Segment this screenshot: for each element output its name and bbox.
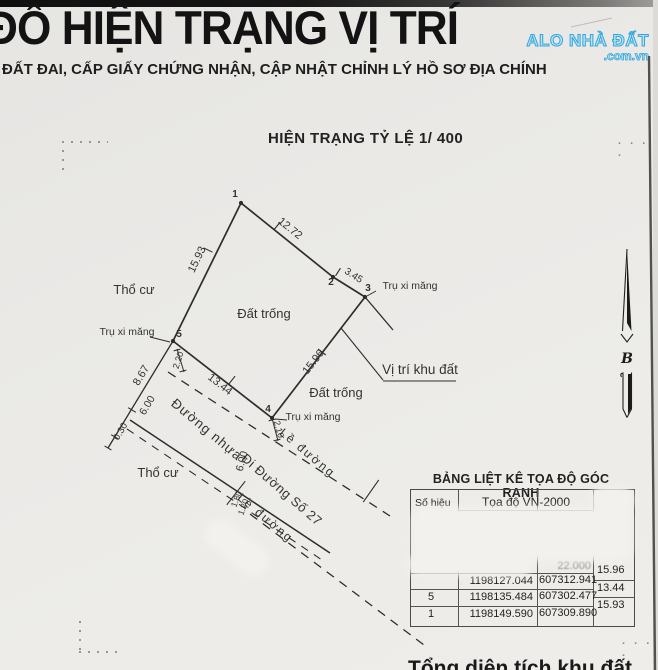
diagram-label: 6.00: [137, 393, 158, 417]
diagram-line: [173, 203, 241, 341]
dimension-tick: [336, 268, 341, 276]
diagram-line: [571, 18, 612, 27]
blur-patch: [417, 512, 627, 556]
table-hline: [593, 597, 634, 598]
diagram-label: 2.20: [171, 350, 186, 370]
diagram-label: 2: [328, 277, 334, 288]
diagram-label: 8.67: [131, 363, 152, 388]
edge-length: 15.96: [597, 564, 625, 576]
diagram-label: 5: [176, 329, 182, 340]
diagram-label: Trụ xi măng: [285, 411, 340, 423]
north-arrow-icon: [621, 249, 633, 418]
diagram-line: [341, 328, 383, 380]
coord-y: 607302.477: [539, 590, 591, 602]
dimension-tick: [274, 439, 281, 441]
blur-patch: [595, 492, 629, 508]
diagram-label: 3: [365, 283, 371, 294]
diagram-line: [365, 297, 393, 330]
north-label: B: [620, 351, 633, 367]
diagram-line: [241, 203, 333, 277]
diagram-label: 3.45: [342, 266, 365, 286]
coord-x: 1198127.044: [463, 575, 533, 587]
diagram-label: 12.72: [275, 215, 304, 242]
dimension-tick: [363, 480, 378, 502]
diagram-label: Thổ cư: [137, 465, 179, 480]
diagram-label: 15.96: [300, 348, 326, 377]
dimension-tick: [105, 446, 112, 450]
blur-patch: [412, 558, 528, 571]
col-header-id: Số hiệu: [415, 497, 451, 509]
diagram-label: 13.44: [205, 371, 234, 397]
boundary-vertex: [239, 201, 243, 205]
table-hline: [458, 510, 594, 511]
diagram-label: Đất trống: [237, 306, 290, 321]
diagram-label: Vị trí khu đất: [382, 362, 458, 377]
diagram-label: Thổ cư: [113, 282, 155, 297]
corner-id: 5: [411, 591, 451, 603]
diagram-label: 1: [232, 189, 238, 200]
col-header-coord: Tọa độ VN-2000: [458, 495, 594, 509]
diagram-label: 4: [265, 404, 271, 415]
coord-y: 607312.941: [539, 574, 591, 586]
corner-id: 1: [411, 608, 451, 620]
edge-length: 15.93: [597, 599, 625, 611]
diagram-label: Trụ xi măng: [382, 280, 437, 292]
diagram-label: 0.30: [111, 421, 130, 443]
diagram-label: Trụ xi măng: [99, 326, 154, 338]
coord-y: 607309.890: [539, 607, 591, 619]
coord-x: 1198149.590: [463, 608, 533, 620]
diagram-label: Lề đường: [277, 426, 339, 481]
edge-length: 13.44: [597, 582, 625, 594]
dots-mark: . . . .: [618, 135, 658, 159]
boundary-vertex: [363, 295, 367, 299]
table-hline: [593, 580, 634, 581]
diagram-label: Đất trống: [309, 385, 362, 400]
scanned-survey-document: ĐỒ HIỆN TRẠNG VỊ TRÍ ĐẤT ĐAI, CẤP GIẤY C…: [0, 0, 658, 670]
bottom-cutoff-text: Tổng diện tích khu đất: [408, 657, 654, 670]
boundary-vertex: [270, 416, 274, 420]
dots-mark: . . . .: [622, 635, 658, 659]
dimension-tick: [229, 376, 235, 384]
coord-y-partial: 22.000: [539, 560, 591, 572]
boundary-vertex: [171, 339, 175, 343]
coord-x: 1198135.484: [463, 591, 533, 603]
diagram-label: 15.93: [186, 245, 209, 275]
